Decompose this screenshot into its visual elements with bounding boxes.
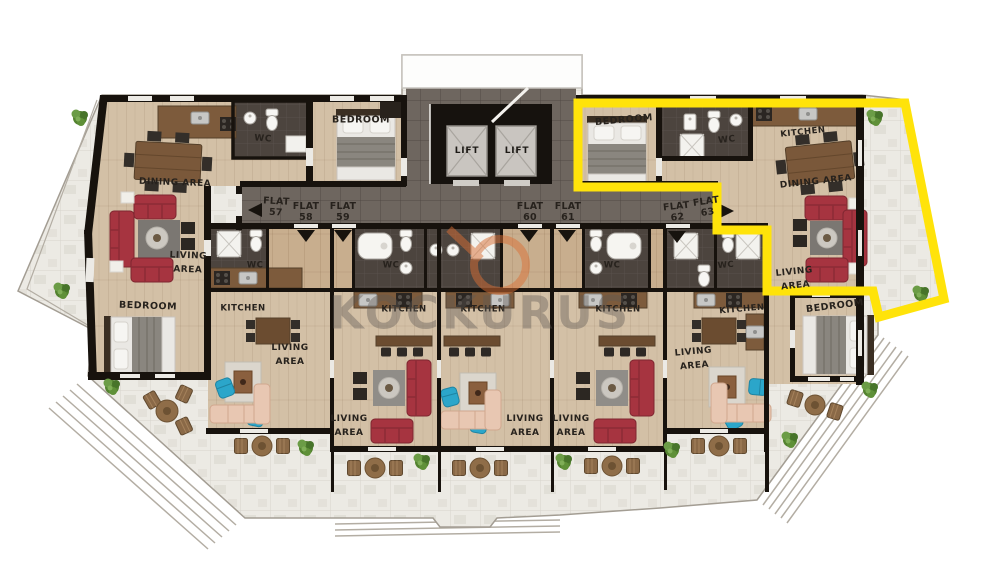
sink-icon — [191, 112, 209, 124]
plant-icon — [72, 110, 89, 127]
bed — [104, 316, 175, 376]
sink-icon — [244, 112, 256, 124]
wardrobe — [380, 100, 402, 118]
floorplan-drawing — [0, 0, 1000, 563]
sink-icon — [799, 108, 817, 120]
toilet-icon — [266, 109, 278, 131]
sofa-red — [134, 195, 176, 219]
terrace-table-set — [235, 436, 290, 456]
lift-car-2 — [496, 126, 536, 176]
rug — [373, 370, 405, 406]
floorplan-canvas: WCDINING AREABEDROOMLIVING AREABEDROOMWC… — [0, 0, 1000, 563]
lift-car-1 — [447, 126, 487, 176]
bathtub-icon — [358, 233, 392, 259]
stove-icon — [756, 107, 772, 121]
roof-outline — [402, 55, 582, 88]
bed — [587, 116, 647, 187]
bed — [336, 109, 396, 180]
